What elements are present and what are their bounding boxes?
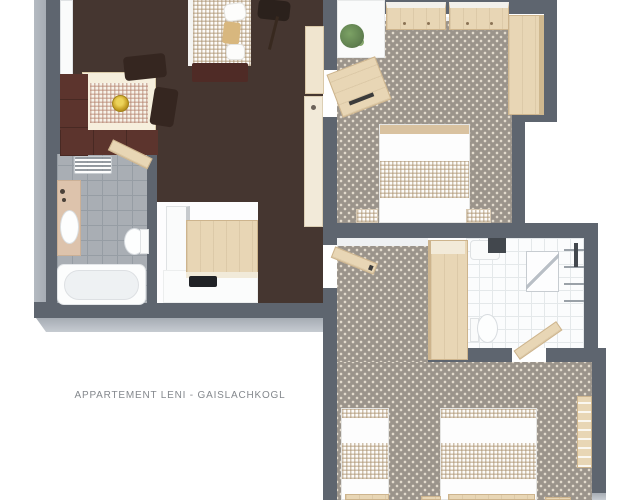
- bathroom2-mirror-mat: [488, 238, 506, 253]
- daybed-cushion: [222, 21, 241, 45]
- mid-wall-upper: [323, 0, 337, 70]
- footboard-strip-right: [448, 494, 535, 500]
- sideboard-upper: [305, 26, 324, 94]
- double-bed-head: [441, 409, 536, 418]
- bedroom2-single-bed: [341, 408, 389, 500]
- potted-plant: [340, 24, 364, 48]
- bedroom1-wall-right-upper: [544, 0, 557, 122]
- bedroom1-double-bed: [379, 124, 470, 223]
- bedroom1-wardrobe: [508, 15, 544, 115]
- shower-glass: [526, 251, 559, 292]
- bedroom2-double-bed: [440, 408, 537, 500]
- bench-knob-2: [427, 22, 430, 25]
- kitchen-counter: [186, 220, 258, 274]
- floorplan-scene: APPARTEMENT LENI - GAISLACHKOGL: [0, 0, 636, 500]
- nightstand-right: [466, 209, 491, 223]
- desk-item: [349, 92, 375, 105]
- daybed: [188, 0, 251, 82]
- hall-door-leaf: [304, 96, 323, 227]
- bathroom1-wall-right: [147, 146, 157, 303]
- footboard-strip-mid: [421, 496, 441, 500]
- door-handle: [311, 105, 316, 110]
- hall-arm-baseline: [337, 238, 428, 246]
- bench-knob: [403, 22, 406, 25]
- toilet-tank: [140, 229, 149, 254]
- plan-title: APPARTEMENT LENI - GAISLACHKOGL: [40, 390, 320, 401]
- dining-table: [82, 72, 156, 133]
- storage-bench-right: [449, 2, 509, 30]
- mid-wall-lower: [323, 288, 337, 500]
- bedroom2-radiator-bench: [577, 396, 592, 468]
- toiletry-item: [60, 189, 65, 194]
- coat-rack: [257, 0, 291, 22]
- dining-chair-top: [123, 53, 167, 81]
- towel-rack-bar: [574, 243, 578, 267]
- toiletry-item-2: [62, 198, 66, 202]
- bathroom2-wall-right: [584, 238, 598, 348]
- outer-wall-face-left: [34, 0, 46, 318]
- mid-wall-middle: [323, 117, 337, 245]
- bathtub-basin: [64, 270, 139, 300]
- bench-knob-3: [466, 22, 469, 25]
- bench-knob-4: [490, 22, 493, 25]
- fruit-bowl: [112, 95, 129, 112]
- closet-strip: [60, 0, 73, 84]
- daybed-frame: [192, 63, 248, 82]
- nightstand-left: [356, 209, 378, 223]
- outer-wall-face-bottom: [36, 318, 334, 332]
- cooktop: [189, 276, 217, 287]
- toilet2-bowl: [477, 314, 498, 343]
- towel-radiator: [74, 156, 112, 174]
- sink: [60, 210, 79, 244]
- storage-bench-left: [386, 2, 446, 30]
- single-bed-blanket: [342, 443, 388, 479]
- single-bed-head: [342, 409, 388, 418]
- bedroom2-wall-right-cut: [592, 493, 606, 500]
- door-edge-mark: [368, 265, 374, 271]
- bathtub: [57, 264, 146, 305]
- bedroom1-wall-right-lower: [512, 122, 525, 223]
- footboard-strip-left: [345, 494, 389, 500]
- double-bed-blanket: [441, 443, 536, 479]
- towel-rack: [564, 243, 584, 317]
- bed-blanket: [380, 161, 469, 198]
- daybed-pillow: [223, 2, 247, 23]
- bedroom2-wardrobe: [428, 240, 468, 360]
- sofa-bench-bottom: [60, 130, 158, 155]
- bedroom1-wall-bottom: [337, 223, 598, 238]
- daybed-pillow-2: [226, 44, 245, 60]
- wardrobe-top-panel: [431, 241, 465, 254]
- bed-footboard: [380, 125, 469, 134]
- bedroom2-wall-right: [592, 348, 606, 493]
